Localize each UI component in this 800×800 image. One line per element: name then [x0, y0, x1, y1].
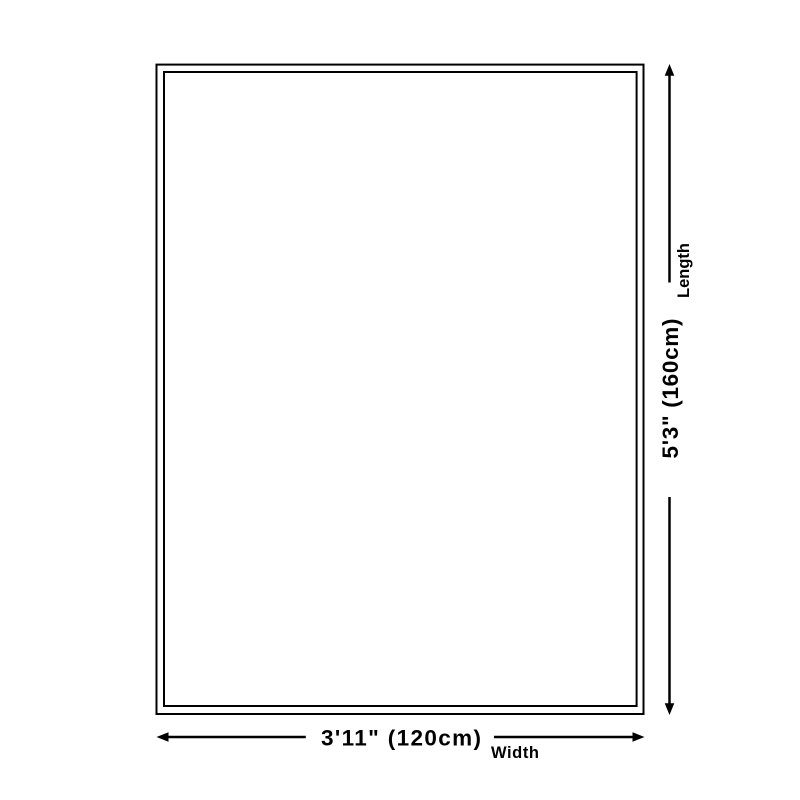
svg-text:5'3" (160cm): 5'3" (160cm)	[658, 319, 683, 459]
svg-text:3'11" (120cm): 3'11" (120cm)	[321, 726, 481, 751]
svg-text:Width: Width	[491, 744, 539, 762]
svg-text:Length: Length	[675, 243, 693, 298]
